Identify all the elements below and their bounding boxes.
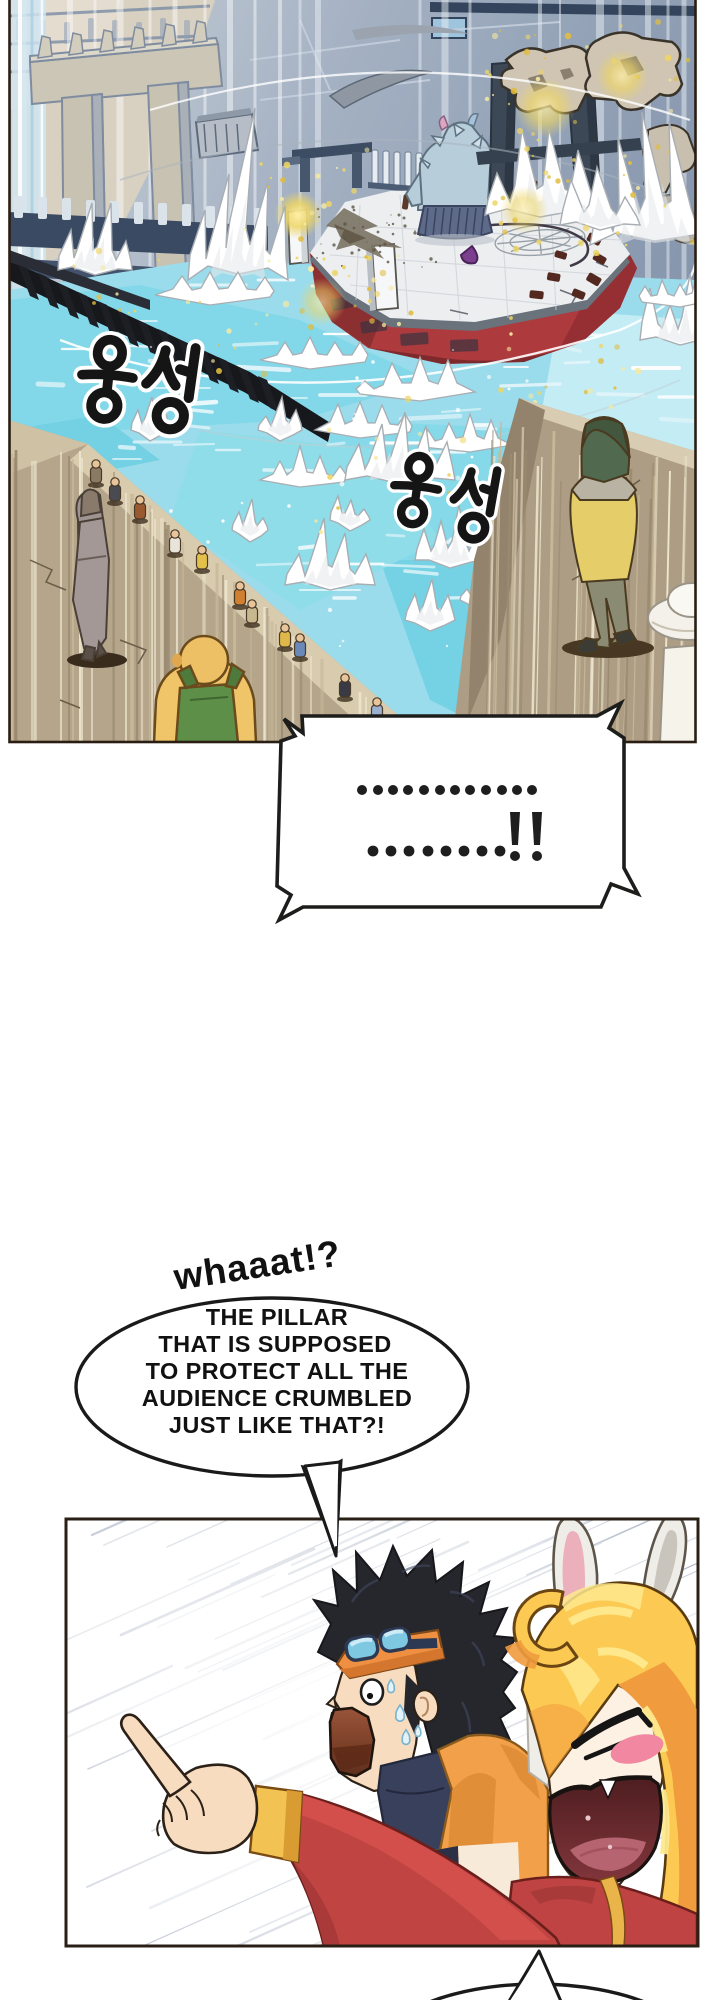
svg-text:JUST LIKE THAT?!: JUST LIKE THAT?! xyxy=(169,1412,385,1438)
svg-text:THE PILLAR: THE PILLAR xyxy=(206,1304,348,1330)
svg-text:whaaat!?: whaaat!? xyxy=(170,1232,344,1298)
svg-text:TO PROTECT ALL THE: TO PROTECT ALL THE xyxy=(146,1358,409,1384)
svg-text:AUDIENCE CRUMBLED: AUDIENCE CRUMBLED xyxy=(142,1385,413,1411)
svg-text:THAT IS SUPPOSED: THAT IS SUPPOSED xyxy=(158,1331,391,1357)
